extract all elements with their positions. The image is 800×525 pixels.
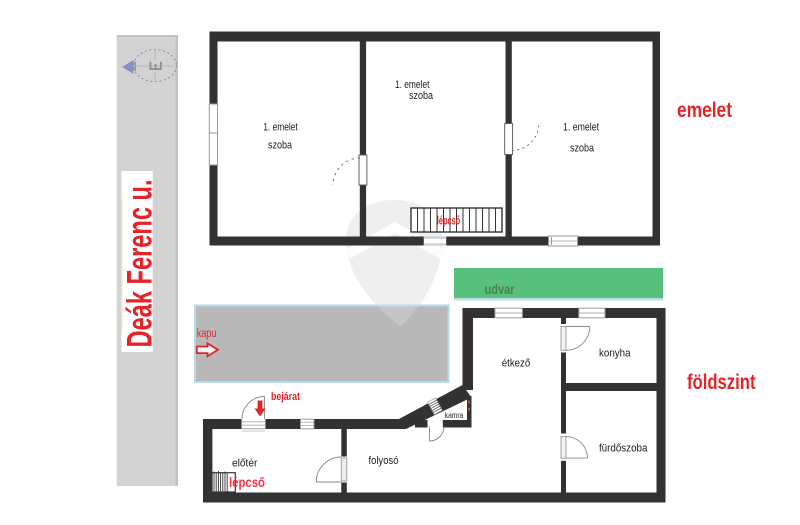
svg-text:szoba: szoba	[570, 143, 595, 155]
svg-text:előtér: előtér	[232, 458, 258, 470]
svg-text:lépcső: lépcső	[229, 475, 265, 490]
svg-text:szoba: szoba	[268, 139, 293, 151]
svg-text:földszint: földszint	[687, 371, 756, 394]
svg-text:folyosó: folyosó	[369, 455, 399, 467]
svg-text:lépcső: lépcső	[437, 215, 460, 227]
svg-text:bejárat: bejárat	[271, 391, 300, 403]
svg-text:Deák Ferenc u.: Deák Ferenc u.	[121, 180, 160, 348]
svg-text:fürdőszoba: fürdőszoba	[599, 443, 648, 455]
svg-text:udvar: udvar	[485, 281, 515, 297]
svg-text:kapu: kapu	[197, 328, 217, 340]
svg-text:étkező: étkező	[502, 358, 531, 370]
svg-text:szoba: szoba	[409, 90, 434, 102]
svg-text:emelet: emelet	[677, 99, 732, 122]
svg-text:1. emelet: 1. emelet	[263, 122, 298, 134]
svg-text:konyha: konyha	[599, 348, 631, 360]
svg-text:1. emelet: 1. emelet	[563, 122, 599, 134]
svg-text:kamra: kamra	[445, 411, 464, 420]
